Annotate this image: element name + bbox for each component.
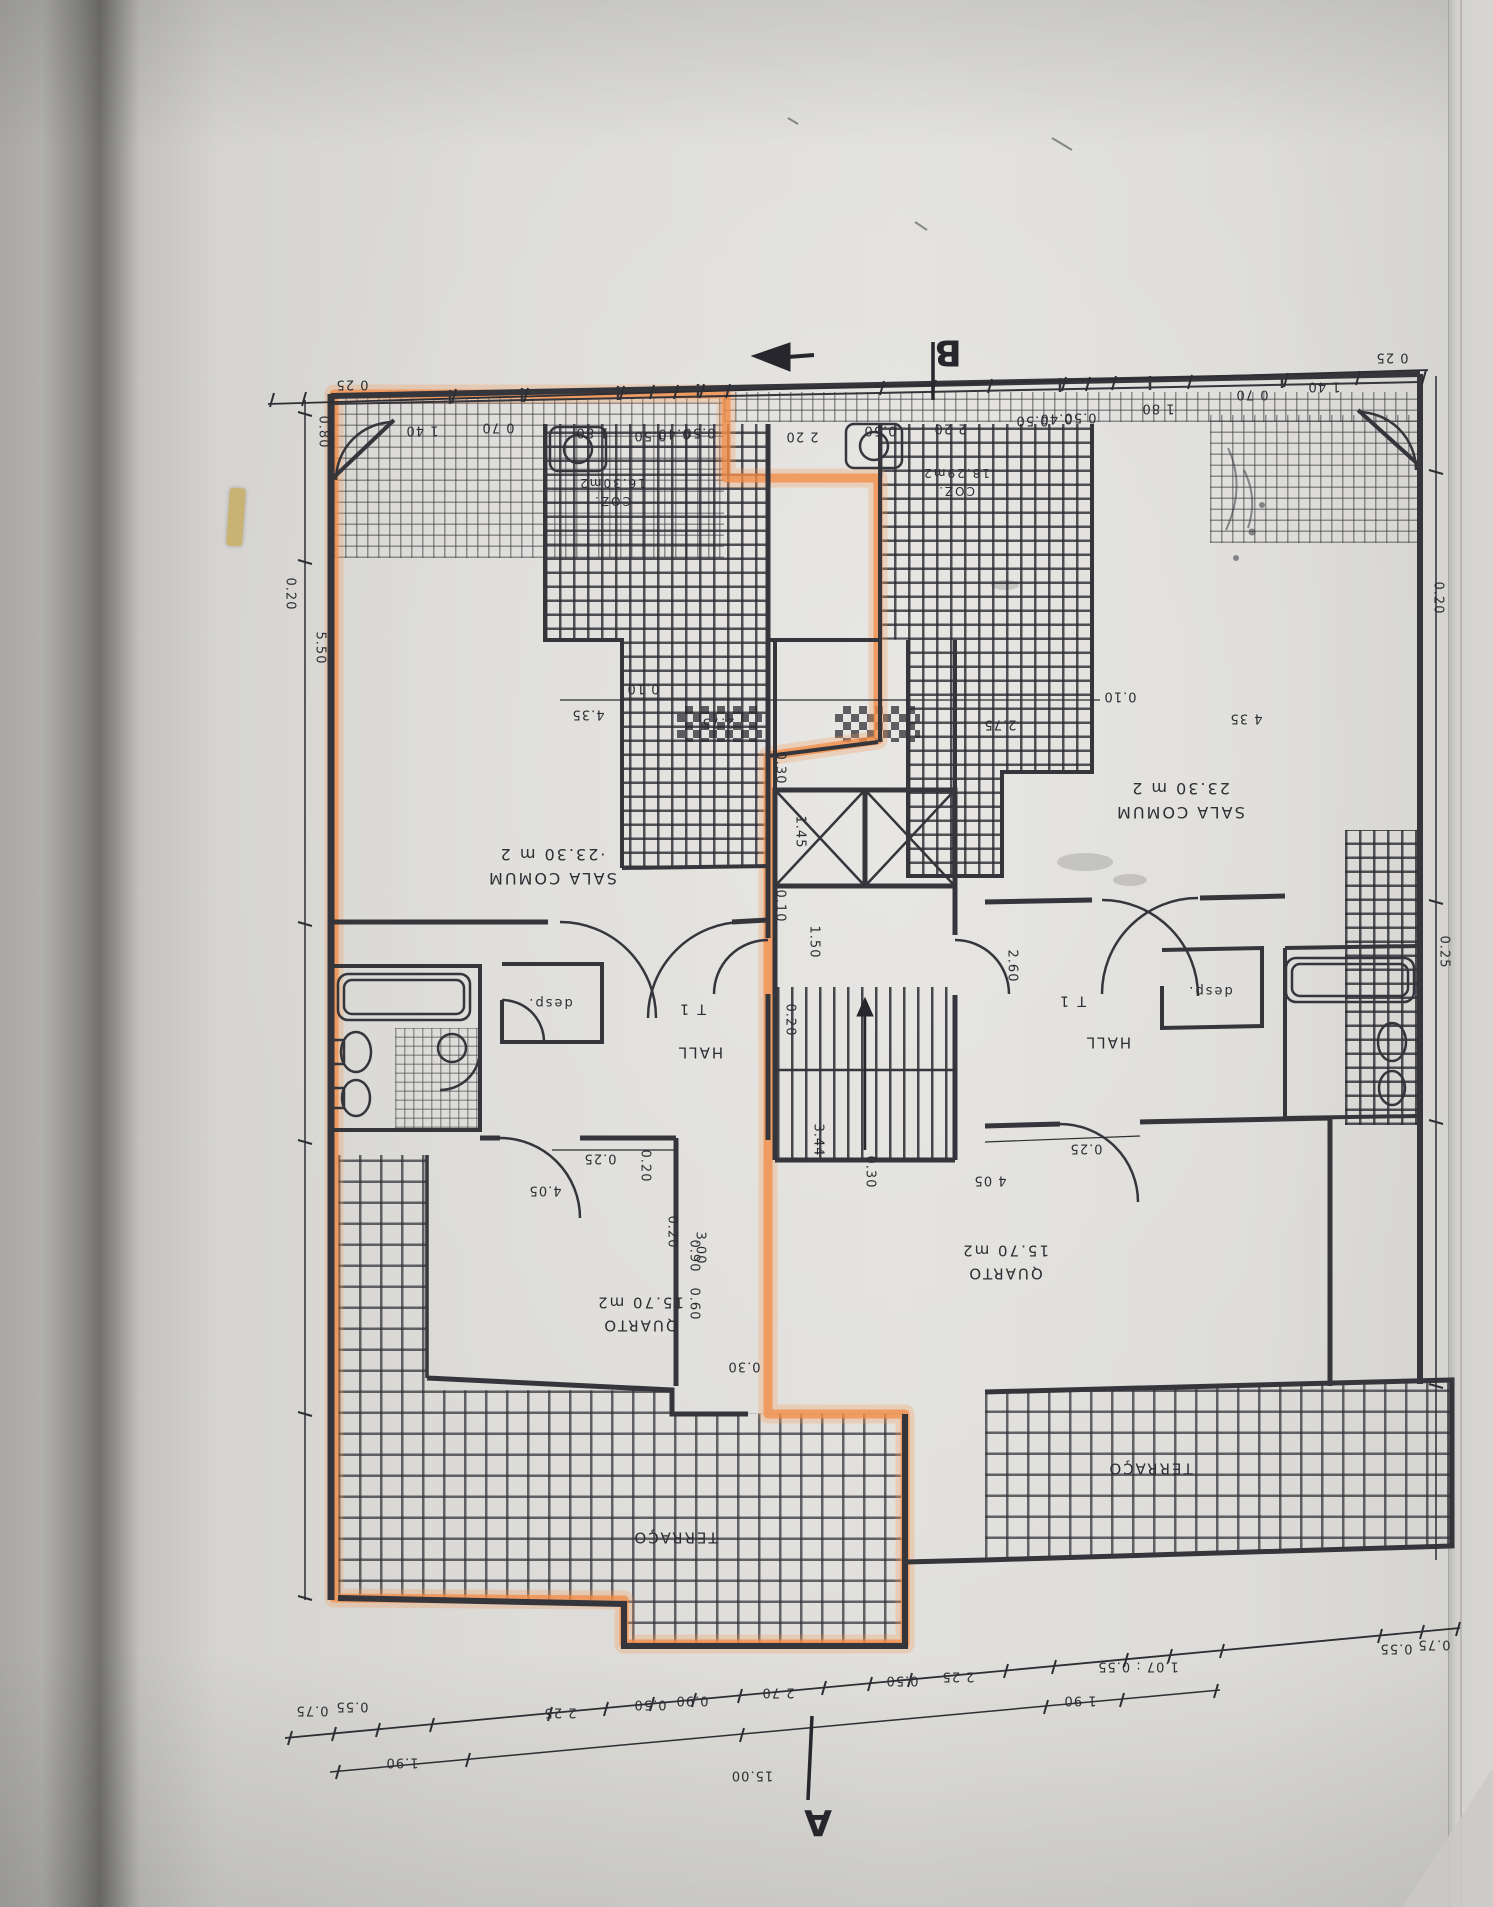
room-label-t1-left: T 1	[678, 998, 706, 1019]
dimension-label: 0.25	[1437, 936, 1452, 969]
dimension-label: 2.75	[702, 715, 735, 730]
room-label-desp-left: desp.	[527, 992, 572, 1012]
dimension-label: 1 40	[406, 423, 439, 438]
dimension-label: 0.75	[296, 1703, 329, 1718]
dimension-label: 0.10	[1104, 689, 1137, 704]
room-label-terraco-right: TERRAÇO	[1107, 1457, 1192, 1480]
dimension-label: 2 70	[762, 1685, 795, 1700]
dimension-label: 0.80	[316, 416, 331, 449]
dimension-label: 1 90	[1064, 1693, 1097, 1708]
dimension-label: 0.50	[886, 1673, 919, 1688]
dimension-label: 0.75	[1418, 1637, 1451, 1652]
dimension-label: 0.50	[634, 1697, 667, 1712]
dimension-label: 0.90	[687, 1240, 702, 1273]
dimension-label: 1.07 : 0.55	[1097, 1659, 1179, 1674]
dimension-label: 0.50	[683, 425, 716, 440]
room-label-desp-right: desp.	[1187, 980, 1232, 1000]
dimension-label: 0.90	[676, 1693, 709, 1708]
dimension-label: 5.50	[313, 632, 328, 665]
plan-labels-layer: SALA COMUM·23.30 m 2SALA COMUM23.30 m 2C…	[0, 0, 1493, 1907]
dimension-label: 4 35	[1230, 711, 1263, 726]
dimension-label: 0.50	[864, 423, 897, 438]
dimension-label: 0.10	[627, 681, 660, 696]
room-label-sala-right: SALA COMUM23.30 m 2	[1115, 776, 1245, 824]
room-label-coz-left: COZ.16.30m2	[578, 474, 646, 510]
dimension-label: 0.20	[783, 1004, 798, 1037]
room-label-hall-right: HALL	[1085, 1031, 1131, 1054]
dimension-label: 4 05	[974, 1173, 1007, 1188]
dimension-label: 0.25	[1070, 1141, 1103, 1156]
dimension-label: 0.20	[665, 1216, 680, 1249]
dimension-label: 1 40	[1308, 379, 1341, 394]
dimension-label: 0.60	[687, 1288, 702, 1321]
dimension-label: 0.10	[773, 890, 788, 923]
room-label-quarto-left: QUARTO15.70 m2	[596, 1292, 684, 1337]
dimension-label: 0.20	[283, 578, 298, 611]
dimension-label: 1.45	[793, 816, 808, 849]
dimension-label: 2 25	[544, 1705, 577, 1720]
dimension-label: 0.20	[638, 1150, 653, 1183]
dimension-label: 2 20	[786, 429, 819, 444]
dimension-label: 4.35	[572, 707, 605, 722]
room-label-coz-right: COZ.18.29m2	[922, 464, 990, 500]
dimension-label: 0.30	[728, 1359, 761, 1374]
dimension-label: 1.50	[807, 926, 822, 959]
dimension-label: 1 80	[1142, 401, 1175, 416]
room-label-quarto-right: QUARTO15.70 m2	[961, 1240, 1049, 1285]
dimension-label: 0 25	[336, 377, 369, 392]
room-label-hall-left: HALL	[677, 1041, 723, 1064]
dimension-label: 0 70	[1236, 387, 1269, 402]
dimension-label: 0.25	[584, 1151, 617, 1166]
dimension-label: 0.50	[1064, 410, 1097, 425]
dimension-label: 0.55	[336, 1699, 369, 1714]
dimension-label: 0.55	[1380, 1641, 1413, 1656]
dimension-label: 2.75	[984, 717, 1017, 732]
dimension-label: 15.00	[731, 1768, 773, 1783]
dimension-label: 0.30	[773, 752, 788, 785]
dimension-label: 0.30	[863, 1156, 878, 1189]
dimension-label: 3.44	[811, 1124, 826, 1157]
dimension-label: 0 25	[1376, 350, 1409, 365]
photographed-floorplan-page: B A SALA COMUM·23.30 m 2SALA COMUM23.30 …	[0, 0, 1493, 1907]
dimension-label: 0.20	[1431, 582, 1446, 615]
dimension-label: 2.60	[1005, 950, 1020, 983]
room-label-t1-right: T 1	[1058, 990, 1086, 1011]
dimension-label: 1.90	[386, 1755, 419, 1770]
room-label-terraco-left: TERRAÇO	[632, 1526, 717, 1549]
dimension-label: 4.05	[529, 1183, 562, 1198]
dimension-label: 2 20	[934, 421, 967, 436]
dimension-label: 2 25	[942, 1669, 975, 1684]
room-label-sala-left: SALA COMUM·23.30 m 2	[487, 842, 617, 890]
dimension-label: 1 80	[576, 425, 609, 440]
dimension-label: 0 70	[482, 420, 515, 435]
